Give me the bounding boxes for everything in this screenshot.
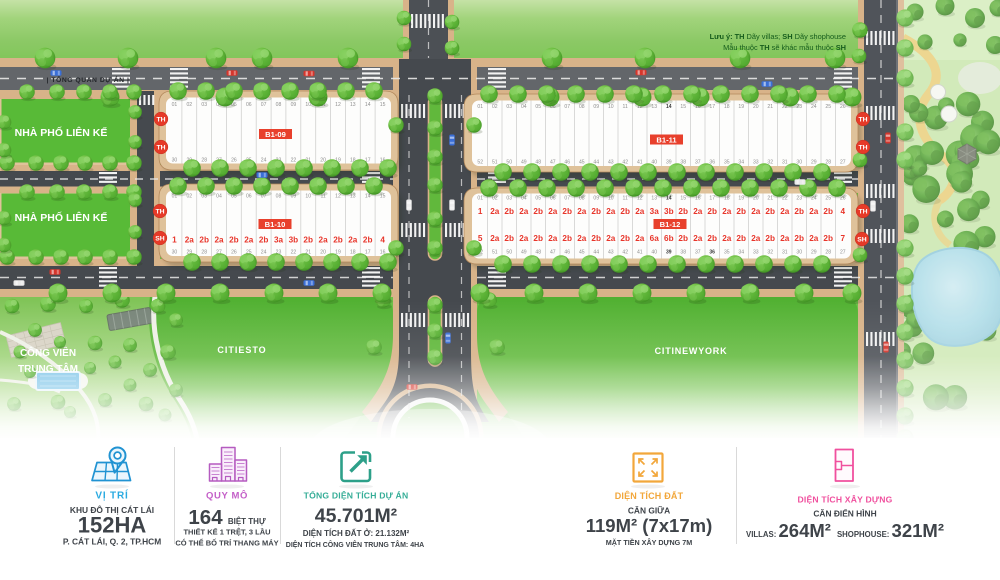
svg-text:30: 30 — [172, 250, 178, 256]
svg-text:2b: 2b — [562, 234, 572, 243]
svg-text:33: 33 — [753, 160, 759, 166]
svg-text:6b: 6b — [664, 234, 674, 243]
svg-text:2b: 2b — [736, 234, 746, 243]
svg-text:30: 30 — [172, 158, 178, 164]
svg-text:2a: 2a — [490, 207, 500, 216]
svg-text:3b: 3b — [664, 207, 674, 216]
svg-text:18: 18 — [724, 104, 730, 110]
svg-text:38: 38 — [680, 250, 686, 256]
svg-text:2b: 2b — [794, 234, 804, 243]
svg-text:39: 39 — [666, 250, 672, 256]
svg-text:15: 15 — [380, 102, 386, 108]
svg-text:21: 21 — [767, 196, 773, 202]
svg-text:2b: 2b — [259, 236, 269, 245]
svg-text:43: 43 — [608, 250, 614, 256]
svg-text:29: 29 — [811, 160, 817, 166]
svg-text:39: 39 — [666, 160, 672, 166]
svg-text:22: 22 — [291, 158, 297, 164]
svg-text:24: 24 — [261, 158, 267, 164]
svg-text:27: 27 — [840, 160, 846, 166]
svg-text:05: 05 — [535, 196, 541, 202]
svg-text:2a: 2a — [780, 234, 790, 243]
svg-text:03: 03 — [201, 102, 207, 108]
svg-text:SH: SH — [155, 235, 165, 242]
svg-text:35: 35 — [724, 250, 730, 256]
svg-text:42: 42 — [622, 250, 628, 256]
svg-text:TRUNG TÂM: TRUNG TÂM — [18, 362, 78, 375]
svg-text:2a: 2a — [319, 236, 329, 245]
svg-text:08: 08 — [276, 194, 282, 200]
svg-text:20: 20 — [753, 104, 759, 110]
svg-text:2a: 2a — [519, 234, 529, 243]
svg-text:TH: TH — [858, 208, 867, 215]
svg-text:10: 10 — [305, 194, 311, 200]
svg-text:26: 26 — [231, 158, 237, 164]
svg-text:3b: 3b — [289, 236, 299, 245]
svg-text:5: 5 — [478, 234, 483, 243]
svg-text:37: 37 — [695, 160, 701, 166]
svg-text:06: 06 — [246, 102, 252, 108]
svg-text:37: 37 — [695, 250, 701, 256]
svg-text:2a: 2a — [185, 236, 195, 245]
svg-text:DIỆN TÍCH XÂY DỰNG: DIỆN TÍCH XÂY DỰNG — [797, 494, 892, 505]
svg-text:07: 07 — [261, 102, 267, 108]
svg-text:08: 08 — [276, 102, 282, 108]
svg-text:CĂN GIỮA: CĂN GIỮA — [628, 506, 670, 516]
svg-text:2b: 2b — [591, 207, 601, 216]
svg-text:2a: 2a — [751, 207, 761, 216]
svg-text:32: 32 — [767, 250, 773, 256]
svg-text:35: 35 — [724, 160, 730, 166]
svg-text:TH: TH — [156, 116, 165, 123]
svg-text:33: 33 — [753, 250, 759, 256]
svg-text:2b: 2b — [562, 207, 572, 216]
svg-text:01: 01 — [477, 196, 483, 202]
svg-text:14: 14 — [365, 102, 371, 108]
svg-text:TH: TH — [858, 116, 867, 123]
svg-text:DIỆN TÍCH ĐẤT: DIỆN TÍCH ĐẤT — [615, 490, 684, 501]
svg-text:Mẫu thuộc TH sẽ khác mẫu thuộc: Mẫu thuộc TH sẽ khác mẫu thuộc SH — [723, 43, 846, 52]
svg-text:THIẾT KẾ 1 TRỆT, 3 LẦU: THIẾT KẾ 1 TRỆT, 3 LẦU — [183, 527, 270, 537]
svg-text:2a: 2a — [548, 234, 558, 243]
svg-text:NHÀ PHỐ LIÊN KẾ: NHÀ PHỐ LIÊN KẾ — [15, 125, 108, 139]
svg-text:2a: 2a — [809, 207, 819, 216]
svg-text:2b: 2b — [707, 234, 717, 243]
svg-text:2a: 2a — [809, 234, 819, 243]
svg-text:15: 15 — [680, 104, 686, 110]
svg-text:02: 02 — [492, 104, 498, 110]
svg-text:| TỔNG QUAN DỰ ÁN |: | TỔNG QUAN DỰ ÁN | — [47, 75, 130, 84]
svg-text:2b: 2b — [533, 207, 543, 216]
svg-text:11: 11 — [623, 104, 628, 110]
svg-text:B1-11: B1-11 — [656, 135, 677, 144]
svg-text:30: 30 — [796, 250, 802, 256]
svg-text:31: 31 — [782, 160, 788, 166]
svg-text:27: 27 — [840, 250, 846, 256]
svg-text:2b: 2b — [707, 207, 717, 216]
svg-text:13: 13 — [350, 102, 356, 108]
svg-text:21: 21 — [767, 104, 773, 110]
svg-text:41: 41 — [637, 160, 643, 166]
svg-text:34: 34 — [738, 250, 744, 256]
svg-text:DIỆN TÍCH ĐẤT Ở: 21.132M²: DIỆN TÍCH ĐẤT Ở: 21.132M² — [303, 528, 410, 538]
svg-text:44: 44 — [593, 250, 599, 256]
svg-text:45.701M²: 45.701M² — [315, 505, 398, 527]
svg-text:2b: 2b — [229, 236, 239, 245]
svg-text:01: 01 — [172, 102, 178, 108]
svg-text:2a: 2a — [577, 207, 587, 216]
svg-text:04: 04 — [216, 194, 222, 200]
svg-text:3a: 3a — [274, 236, 284, 245]
svg-text:VỊ TRÍ: VỊ TRÍ — [95, 489, 128, 502]
svg-text:24: 24 — [261, 250, 267, 256]
svg-text:2a: 2a — [751, 234, 761, 243]
svg-text:2a: 2a — [635, 207, 645, 216]
svg-text:2b: 2b — [823, 207, 833, 216]
svg-text:119M² (7x17m): 119M² (7x17m) — [586, 515, 712, 536]
svg-text:28: 28 — [201, 158, 207, 164]
svg-text:2b: 2b — [765, 207, 775, 216]
svg-text:49: 49 — [521, 160, 527, 166]
svg-text:2a: 2a — [214, 236, 224, 245]
svg-text:2b: 2b — [363, 236, 373, 245]
svg-text:08: 08 — [579, 104, 585, 110]
svg-text:20: 20 — [320, 250, 326, 256]
svg-text:Lưu ý: TH Dãy villas; SH Dãy s: Lưu ý: TH Dãy villas; SH Dãy shophouse — [710, 32, 846, 41]
svg-text:10: 10 — [608, 104, 614, 110]
svg-text:17: 17 — [365, 250, 371, 256]
svg-text:52: 52 — [477, 160, 483, 166]
svg-text:2b: 2b — [765, 234, 775, 243]
svg-text:28: 28 — [201, 250, 207, 256]
svg-text:25: 25 — [825, 104, 831, 110]
svg-text:2a: 2a — [348, 236, 358, 245]
svg-text:23: 23 — [796, 196, 802, 202]
svg-text:01: 01 — [477, 104, 483, 110]
svg-text:45: 45 — [579, 160, 585, 166]
svg-text:2a: 2a — [693, 234, 703, 243]
svg-text:09: 09 — [593, 196, 599, 202]
svg-text:2b: 2b — [303, 236, 313, 245]
svg-text:2a: 2a — [693, 207, 703, 216]
svg-text:28: 28 — [825, 250, 831, 256]
svg-text:50: 50 — [506, 250, 512, 256]
svg-text:CITINEWYORK: CITINEWYORK — [655, 346, 728, 356]
svg-text:14: 14 — [666, 104, 672, 110]
svg-text:09: 09 — [593, 104, 599, 110]
svg-text:2b: 2b — [678, 207, 688, 216]
svg-text:2b: 2b — [794, 207, 804, 216]
svg-text:CÔNG VIÊN: CÔNG VIÊN — [20, 346, 76, 359]
svg-text:2b: 2b — [533, 234, 543, 243]
svg-text:CĂN ĐIỂN HÌNH: CĂN ĐIỂN HÌNH — [813, 508, 876, 519]
svg-text:22: 22 — [291, 250, 297, 256]
svg-text:1: 1 — [172, 236, 177, 245]
svg-text:2a: 2a — [722, 207, 732, 216]
svg-text:QUY MÔ: QUY MÔ — [206, 490, 248, 502]
svg-text:05: 05 — [535, 104, 541, 110]
svg-text:2a: 2a — [722, 234, 732, 243]
svg-text:2a: 2a — [548, 207, 558, 216]
svg-text:36: 36 — [709, 250, 715, 256]
svg-text:51: 51 — [492, 160, 498, 166]
svg-text:25: 25 — [825, 196, 831, 202]
svg-text:24: 24 — [811, 104, 817, 110]
svg-text:13: 13 — [651, 196, 657, 202]
svg-text:43: 43 — [608, 160, 614, 166]
svg-text:07: 07 — [564, 104, 570, 110]
svg-text:19: 19 — [738, 196, 744, 202]
svg-text:11: 11 — [623, 196, 628, 202]
svg-text:2b: 2b — [620, 234, 630, 243]
svg-text:26: 26 — [231, 250, 237, 256]
svg-text:4: 4 — [841, 207, 846, 216]
svg-text:B1-12: B1-12 — [660, 220, 681, 229]
svg-text:SH: SH — [857, 236, 867, 243]
svg-text:29: 29 — [811, 250, 817, 256]
svg-text:2b: 2b — [736, 207, 746, 216]
svg-text:TH: TH — [155, 208, 164, 215]
svg-text:2a: 2a — [780, 207, 790, 216]
svg-text:2a: 2a — [490, 234, 500, 243]
svg-text:09: 09 — [291, 102, 297, 108]
svg-text:47: 47 — [550, 250, 556, 256]
svg-text:18: 18 — [350, 250, 356, 256]
svg-text:15: 15 — [680, 196, 686, 202]
svg-text:04: 04 — [521, 104, 527, 110]
svg-text:MẶT TIỀN XÂY DỰNG 7M: MẶT TIỀN XÂY DỰNG 7M — [606, 537, 693, 547]
svg-text:3a: 3a — [650, 207, 660, 216]
svg-text:17: 17 — [709, 196, 715, 202]
svg-text:2a: 2a — [635, 234, 645, 243]
svg-text:2b: 2b — [591, 234, 601, 243]
svg-text:7: 7 — [841, 234, 846, 243]
svg-text:P. CÁT LÁI, Q. 2, TP.HCM: P. CÁT LÁI, Q. 2, TP.HCM — [63, 536, 161, 547]
svg-text:2b: 2b — [504, 234, 514, 243]
svg-text:47: 47 — [550, 160, 556, 166]
svg-text:6a: 6a — [650, 234, 660, 243]
svg-text:51: 51 — [492, 250, 498, 256]
svg-text:2a: 2a — [606, 234, 616, 243]
svg-text:07: 07 — [564, 196, 570, 202]
svg-text:03: 03 — [506, 104, 512, 110]
svg-text:12: 12 — [335, 102, 341, 108]
svg-text:2a: 2a — [577, 234, 587, 243]
svg-text:41: 41 — [637, 250, 643, 256]
svg-text:2a: 2a — [519, 207, 529, 216]
svg-text:2b: 2b — [199, 236, 209, 245]
svg-text:CITIESTO: CITIESTO — [217, 345, 266, 355]
svg-text:CÓ THỂ BỐ TRÍ THANG MÁY: CÓ THỂ BỐ TRÍ THANG MÁY — [175, 538, 278, 548]
svg-text:2b: 2b — [504, 207, 514, 216]
svg-text:TH: TH — [156, 144, 165, 151]
svg-text:NHÀ PHỐ LIÊN KẾ: NHÀ PHỐ LIÊN KẾ — [15, 210, 108, 224]
svg-text:02: 02 — [186, 102, 192, 108]
svg-text:152HA: 152HA — [78, 513, 147, 538]
svg-text:2a: 2a — [244, 236, 254, 245]
svg-text:B1-10: B1-10 — [265, 220, 286, 229]
svg-text:48: 48 — [535, 250, 541, 256]
svg-text:45: 45 — [579, 250, 585, 256]
svg-text:TỔNG DIỆN TÍCH DỰ ÁN: TỔNG DIỆN TÍCH DỰ ÁN — [304, 490, 409, 501]
svg-text:B1-09: B1-09 — [265, 130, 286, 139]
svg-text:2b: 2b — [823, 234, 833, 243]
svg-text:19: 19 — [738, 104, 744, 110]
svg-text:40: 40 — [651, 250, 657, 256]
svg-text:06: 06 — [246, 194, 252, 200]
svg-text:1: 1 — [478, 207, 483, 216]
svg-text:2a: 2a — [606, 207, 616, 216]
svg-text:4: 4 — [380, 236, 385, 245]
svg-text:2b: 2b — [333, 236, 343, 245]
svg-text:2b: 2b — [620, 207, 630, 216]
svg-text:2b: 2b — [678, 234, 688, 243]
svg-text:31: 31 — [782, 250, 788, 256]
svg-text:46: 46 — [564, 250, 570, 256]
svg-text:10: 10 — [305, 102, 311, 108]
svg-text:03: 03 — [506, 196, 512, 202]
svg-text:49: 49 — [521, 250, 527, 256]
svg-text:TH: TH — [858, 144, 867, 151]
svg-text:DIỆN TÍCH CÔNG VIÊN TRUNG TÂM:: DIỆN TÍCH CÔNG VIÊN TRUNG TÂM: 4HA — [286, 540, 424, 549]
